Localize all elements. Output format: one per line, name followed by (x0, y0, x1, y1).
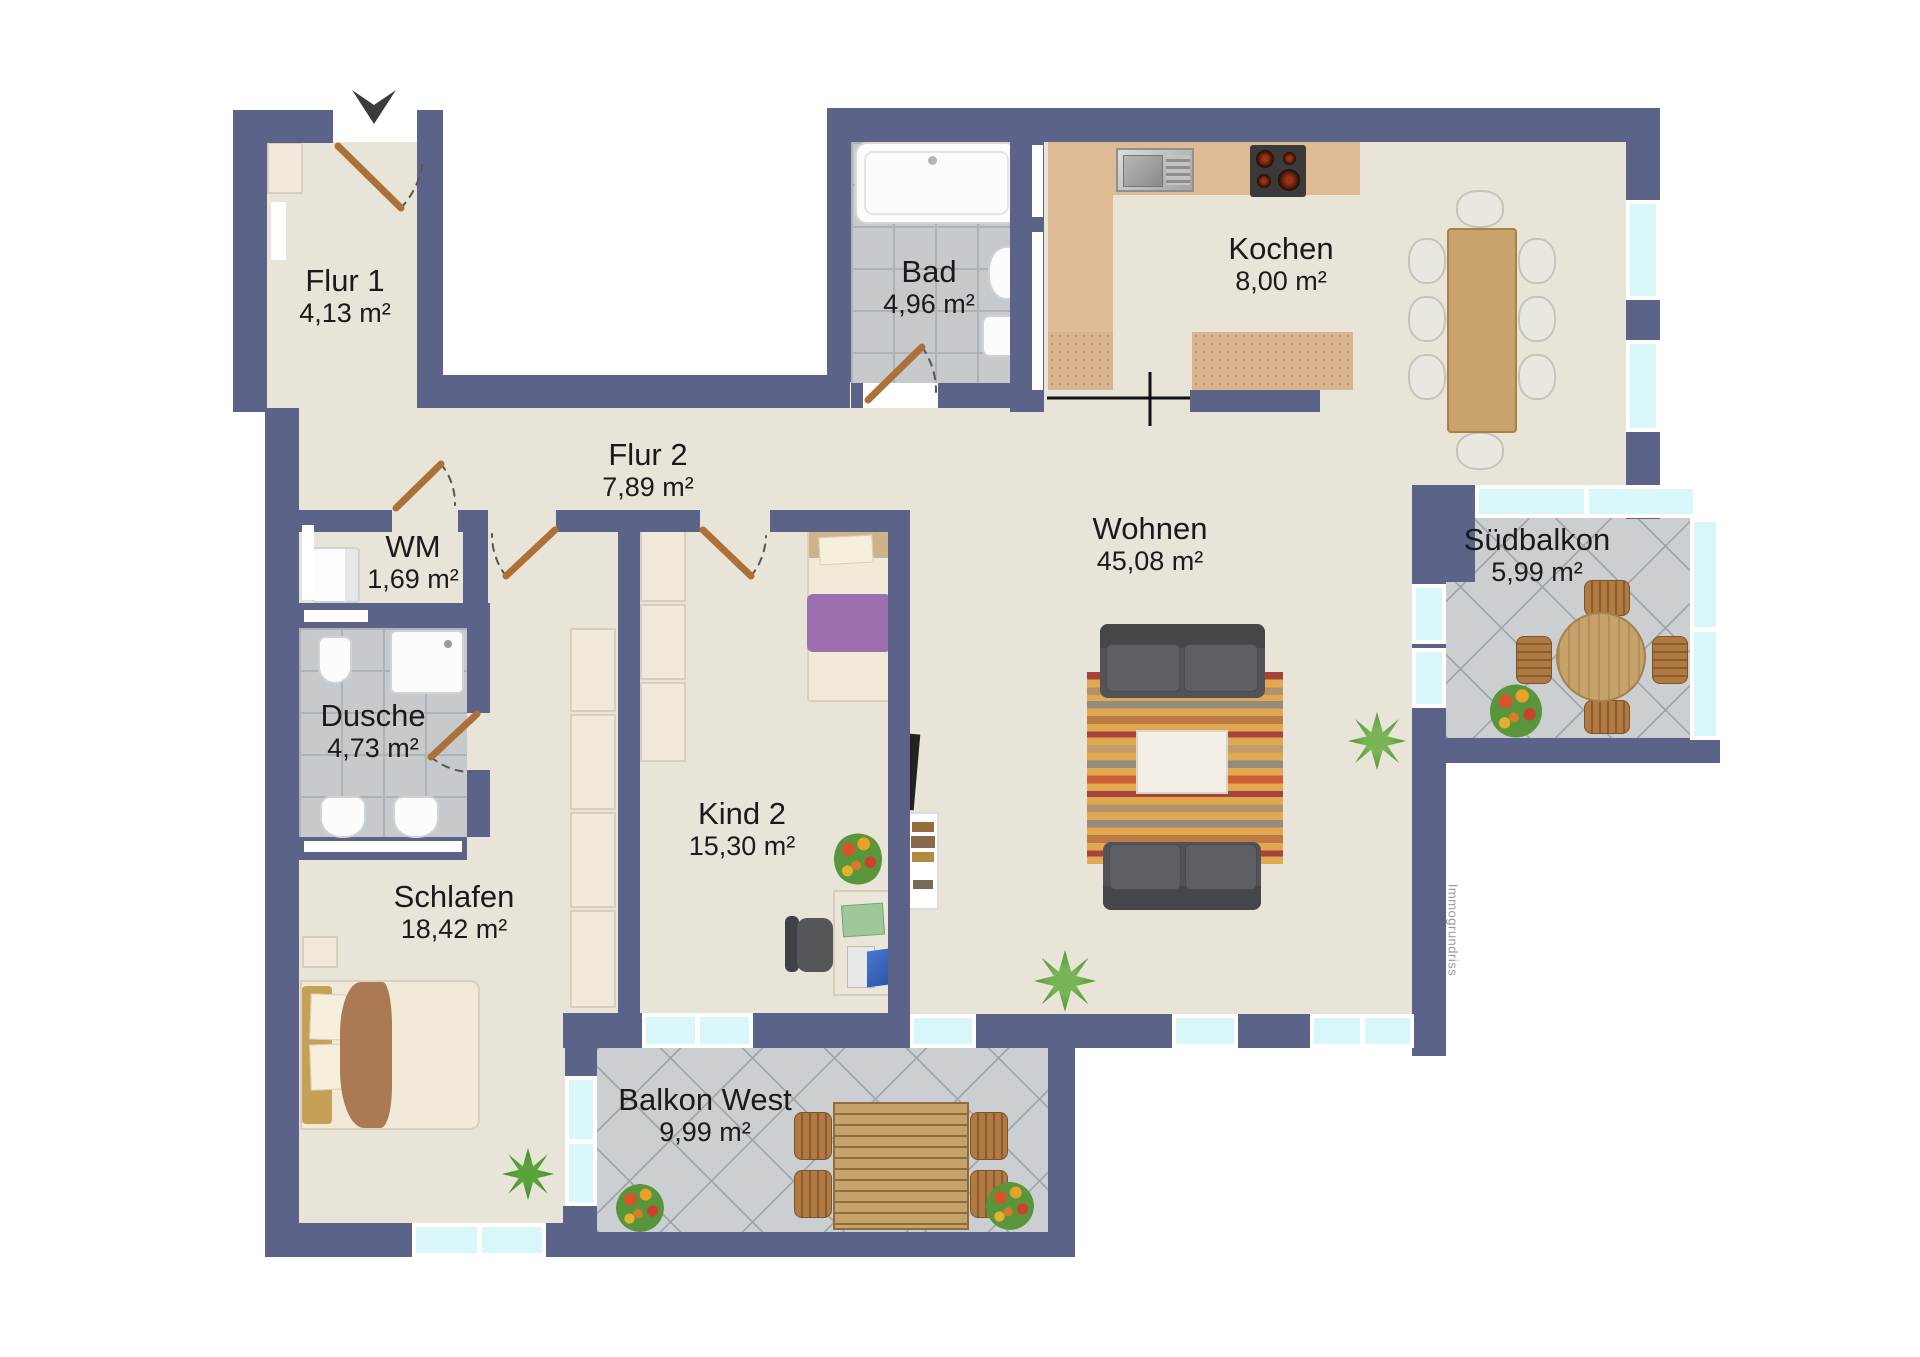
room-name: Wohnen (1093, 511, 1208, 546)
room-label-flur2: Flur 2 7,89 m² (602, 437, 694, 503)
room-name: Kochen (1228, 231, 1333, 266)
room-area: 9,99 m² (618, 1117, 791, 1148)
room-label-schlafen: Schlafen 18,42 m² (394, 879, 515, 945)
room-name: WM (367, 529, 459, 564)
door-bad (868, 347, 936, 400)
entrance-arrow-icon (352, 90, 396, 124)
room-area: 5,99 m² (1464, 557, 1611, 588)
door-entrance (338, 146, 423, 208)
room-area: 7,89 m² (602, 472, 694, 503)
room-label-kochen: Kochen 8,00 m² (1228, 231, 1333, 297)
room-area: 45,08 m² (1093, 546, 1208, 577)
open-passage-symbol (1047, 372, 1190, 426)
room-area: 4,96 m² (883, 289, 975, 320)
plan-symbols-overlay (0, 0, 1920, 1357)
room-label-wm: WM 1,69 m² (367, 529, 459, 595)
room-label-bad: Bad 4,96 m² (883, 254, 975, 320)
room-area: 4,13 m² (299, 298, 391, 329)
room-name: Flur 1 (299, 263, 391, 298)
room-name: Schlafen (394, 879, 515, 914)
room-area: 4,73 m² (320, 733, 425, 764)
room-label-balkon-west: Balkon West 9,99 m² (618, 1082, 791, 1148)
door-dusche (431, 714, 477, 772)
room-name: Balkon West (618, 1082, 791, 1117)
room-name: Bad (883, 254, 975, 289)
room-label-suedbalkon: Südbalkon 5,99 m² (1464, 522, 1611, 588)
door-kind2 (703, 530, 766, 576)
room-name: Südbalkon (1464, 522, 1611, 557)
room-area: 18,42 m² (394, 914, 515, 945)
room-label-dusche: Dusche 4,73 m² (320, 698, 425, 764)
room-name: Dusche (320, 698, 425, 733)
room-name: Kind 2 (689, 796, 796, 831)
room-area: 8,00 m² (1228, 266, 1333, 297)
room-label-kind2: Kind 2 15,30 m² (689, 796, 796, 862)
room-label-wohnen: Wohnen 45,08 m² (1093, 511, 1208, 577)
room-name: Flur 2 (602, 437, 694, 472)
watermark: Immogrundriss (1446, 884, 1461, 976)
floorplan-canvas: Flur 1 4,13 m² Bad 4,96 m² Kochen 8,00 m… (0, 0, 1920, 1357)
room-area: 1,69 m² (367, 564, 459, 595)
door-schlafen (492, 530, 555, 576)
room-label-flur1: Flur 1 4,13 m² (299, 263, 391, 329)
door-wm (396, 464, 455, 508)
room-area: 15,30 m² (689, 831, 796, 862)
